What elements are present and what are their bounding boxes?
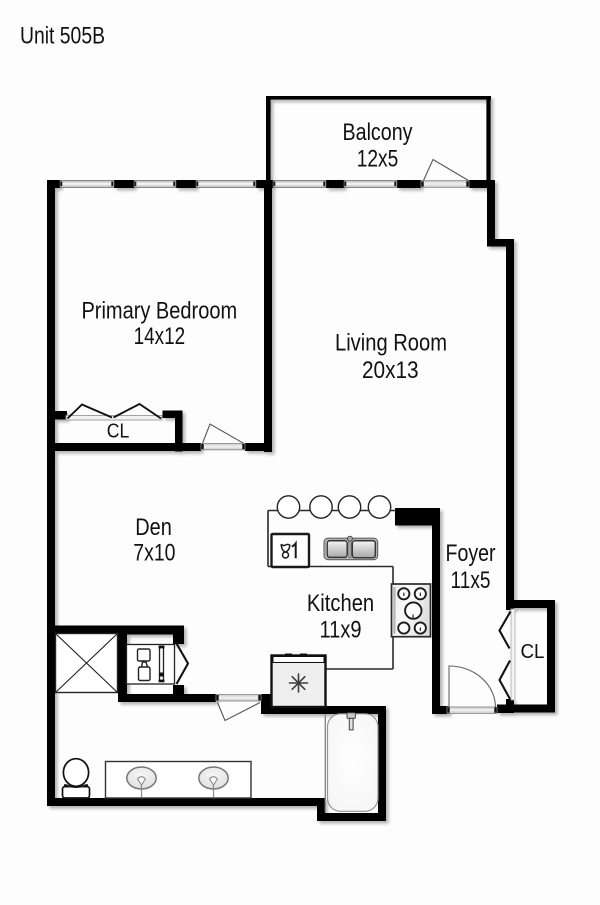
svg-text:CL: CL — [521, 641, 545, 663]
svg-text:12x5: 12x5 — [357, 146, 399, 173]
svg-text:Primary Bedroom: Primary Bedroom — [81, 298, 237, 325]
svg-text:Living Room: Living Room — [335, 330, 447, 357]
svg-text:14x12: 14x12 — [134, 323, 186, 350]
svg-text:11x5: 11x5 — [451, 567, 491, 594]
svg-text:7x10: 7x10 — [133, 539, 175, 566]
svg-text:20x13: 20x13 — [362, 357, 419, 384]
svg-text:Den: Den — [135, 514, 172, 541]
svg-text:Unit 505B: Unit 505B — [20, 23, 105, 50]
svg-text:CL: CL — [107, 421, 130, 443]
svg-text:Foyer: Foyer — [446, 540, 496, 567]
svg-text:Kitchen: Kitchen — [307, 590, 374, 617]
svg-text:Balcony: Balcony — [343, 119, 414, 146]
svg-text:11x9: 11x9 — [320, 617, 362, 644]
